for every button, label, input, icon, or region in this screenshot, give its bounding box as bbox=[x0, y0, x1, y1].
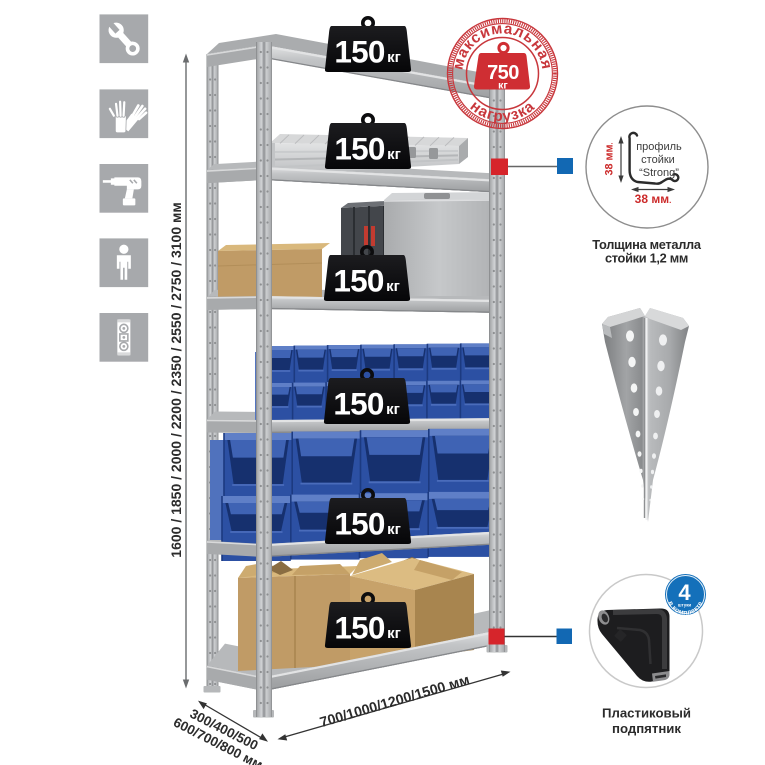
svg-text:“Strong”: “Strong” bbox=[639, 167, 679, 179]
svg-text:1600 / 1850 / 2000 / 2200 / 23: 1600 / 1850 / 2000 / 2200 / 2350 / 2550 … bbox=[168, 202, 184, 557]
svg-text:Пластиковый: Пластиковый bbox=[602, 706, 691, 721]
svg-text:кг: кг bbox=[386, 401, 400, 418]
svg-text:подпятник: подпятник bbox=[612, 721, 681, 736]
svg-text:150: 150 bbox=[334, 506, 384, 542]
svg-text:профиль: профиль bbox=[636, 141, 682, 153]
svg-text:кг: кг bbox=[386, 278, 400, 295]
svg-text:кг: кг bbox=[498, 80, 508, 92]
svg-text:38 мм.: 38 мм. bbox=[604, 142, 616, 175]
svg-text:кг: кг bbox=[387, 49, 401, 66]
svg-text:150: 150 bbox=[333, 263, 383, 299]
svg-text:стойки 1,2 мм: стойки 1,2 мм bbox=[605, 251, 688, 266]
svg-text:стойки: стойки bbox=[641, 154, 675, 166]
svg-text:150: 150 bbox=[334, 131, 384, 167]
svg-text:150: 150 bbox=[334, 610, 384, 646]
svg-text:кг: кг bbox=[387, 625, 401, 642]
svg-text:700/1000/1200/1500 мм: 700/1000/1200/1500 мм bbox=[318, 672, 471, 731]
svg-text:150: 150 bbox=[334, 34, 384, 70]
svg-text:4: 4 bbox=[678, 580, 691, 605]
svg-text:38 мм.: 38 мм. bbox=[635, 192, 672, 206]
svg-text:150: 150 bbox=[333, 386, 383, 422]
svg-text:штуки: штуки bbox=[678, 603, 692, 608]
svg-text:кг: кг bbox=[387, 146, 401, 163]
svg-text:кг: кг bbox=[387, 521, 401, 538]
